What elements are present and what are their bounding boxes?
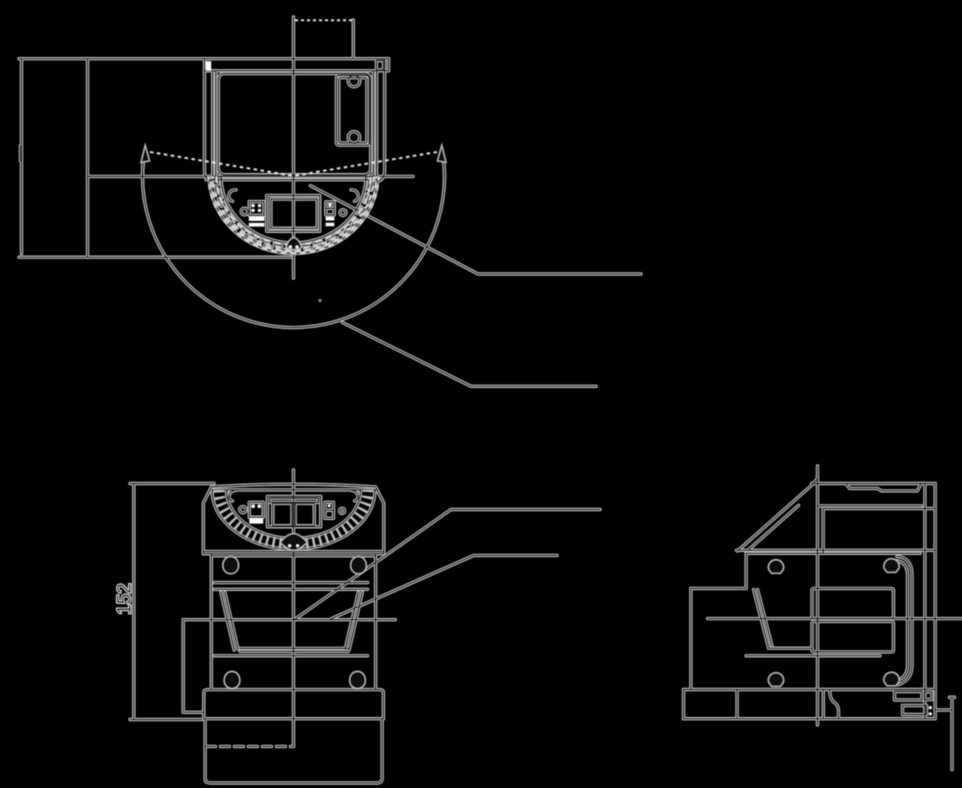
svg-text:152: 152: [115, 583, 136, 615]
